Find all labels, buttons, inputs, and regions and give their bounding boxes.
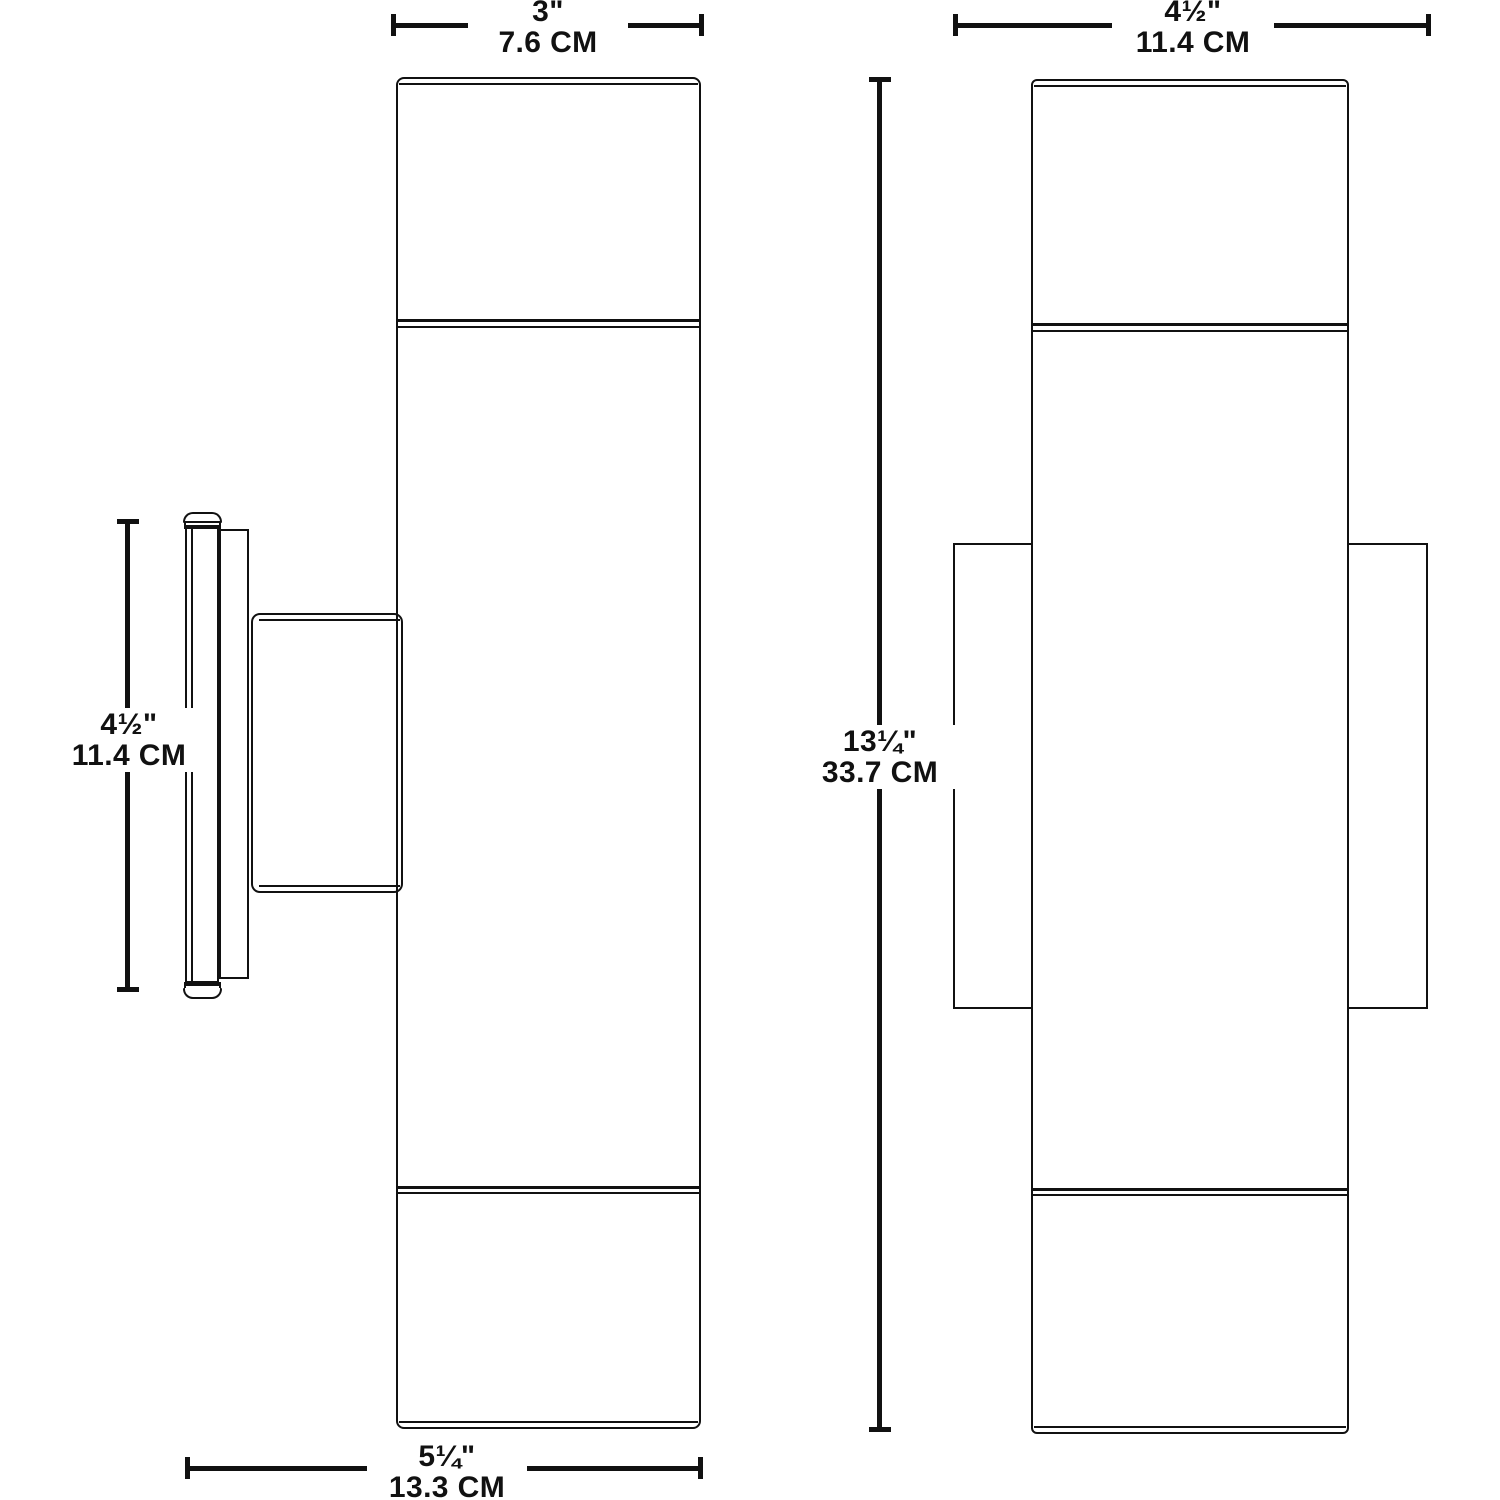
sconce-dimension-diagram: 3" 7.6 CM 4½" 11.4 CM 4½" 11.4 CM 13¼" 3… [0,0,1500,1500]
dim-plate-height-label: 4½" 11.4 CM [48,708,210,772]
dim-side-width-inches: 3" [532,0,564,27]
dim-front-width-label: 4½" 11.4 CM [1112,0,1274,59]
dim-side-width-tick-left [391,14,396,36]
dim-side-width-metric: 7.6 CM [498,27,597,58]
dim-depth-tick-right [698,1457,703,1479]
dim-side-width-tick-right [699,14,704,36]
dim-front-width-inches: 4½" [1164,0,1221,27]
dim-overall-height-tick-bottom [869,1427,891,1432]
dim-depth-metric: 13.3 CM [389,1472,505,1500]
dim-plate-height-tick-top [117,519,139,524]
dim-depth-inches: 5¼" [418,1441,475,1472]
dim-front-width-tick-right [1426,14,1431,36]
dim-overall-height-tick-top [869,77,891,82]
dim-front-width-metric: 11.4 CM [1136,27,1251,58]
dim-plate-height-tick-bottom [117,987,139,992]
dim-depth-label: 5¼" 13.3 CM [367,1440,527,1500]
dim-overall-height-label: 13¼" 33.7 CM [793,725,967,789]
dim-plate-height-metric: 11.4 CM [72,740,187,771]
dim-front-width-tick-left [953,14,958,36]
dim-overall-height-metric: 33.7 CM [822,757,938,788]
dim-plate-height-inches: 4½" [100,709,157,740]
dim-overall-height-inches: 13¼" [843,726,917,757]
dim-depth: 5¼" 13.3 CM [0,0,1500,1500]
dim-depth-tick-left [185,1457,190,1479]
dim-side-width-label: 3" 7.6 CM [468,0,628,59]
